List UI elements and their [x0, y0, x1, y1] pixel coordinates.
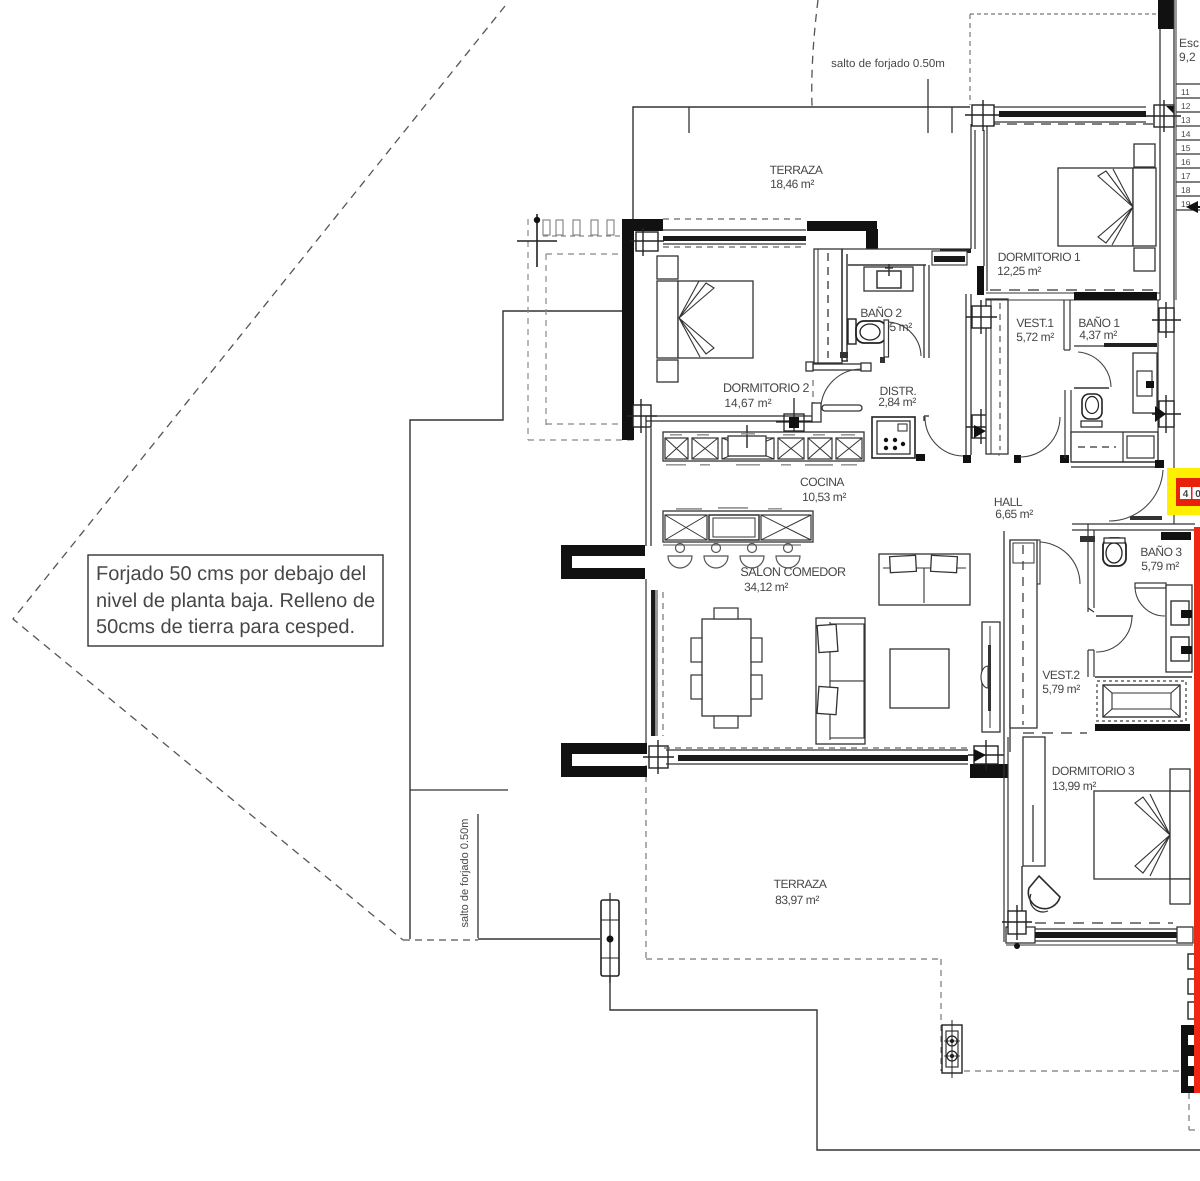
svg-text:Forjado 50 cms por debajo del: Forjado 50 cms por debajo del [96, 563, 366, 585]
svg-text:18: 18 [1181, 185, 1191, 195]
svg-text:50cms de tierra para cesped.: 50cms de tierra para cesped. [96, 616, 355, 638]
svg-text:34,12 m²: 34,12 m² [744, 580, 788, 594]
svg-text:4: 4 [1183, 489, 1189, 500]
svg-text:12: 12 [1181, 101, 1191, 111]
svg-text:VEST.1: VEST.1 [1016, 316, 1054, 330]
svg-text:TERRAZA: TERRAZA [770, 163, 823, 177]
svg-text:VEST.2: VEST.2 [1042, 668, 1080, 682]
svg-text:9,2: 9,2 [1179, 50, 1196, 64]
svg-text:5,79 m²: 5,79 m² [1042, 682, 1080, 696]
svg-text:15: 15 [1181, 143, 1191, 153]
svg-text:nivel de planta baja. Relleno: nivel de planta baja. Relleno de [96, 590, 375, 612]
svg-text:4,37 m²: 4,37 m² [1079, 328, 1117, 342]
svg-text:13,99 m²: 13,99 m² [1052, 779, 1096, 793]
svg-text:BAÑO 2: BAÑO 2 [860, 306, 902, 320]
svg-text:SALON COMEDOR: SALON COMEDOR [740, 565, 846, 579]
svg-text:14: 14 [1181, 129, 1191, 139]
svg-text:salto de forjado 0.50m: salto de forjado 0.50m [831, 58, 945, 70]
svg-text:DORMITORIO 2: DORMITORIO 2 [723, 381, 810, 395]
svg-text:10,53 m²: 10,53 m² [802, 490, 846, 504]
svg-text:17: 17 [1181, 171, 1191, 181]
svg-text:6,65 m²: 6,65 m² [995, 507, 1033, 521]
svg-text:TERRAZA: TERRAZA [774, 877, 827, 891]
svg-text:14,67 m²: 14,67 m² [724, 396, 771, 410]
svg-text:BAÑO 3: BAÑO 3 [1140, 545, 1182, 559]
svg-text:COCINA: COCINA [800, 475, 844, 489]
svg-text:18,46 m²: 18,46 m² [770, 177, 814, 191]
svg-text:16: 16 [1181, 157, 1191, 167]
svg-text:11: 11 [1181, 87, 1190, 97]
svg-text:13: 13 [1181, 115, 1191, 125]
svg-text:DORMITORIO 3: DORMITORIO 3 [1052, 764, 1135, 778]
svg-text:12,25 m²: 12,25 m² [997, 264, 1041, 278]
svg-text:2,84 m²: 2,84 m² [878, 395, 916, 409]
svg-text:Esc: Esc [1179, 36, 1199, 50]
svg-text:5,72 m²: 5,72 m² [1016, 330, 1054, 344]
svg-text:DORMITORIO 1: DORMITORIO 1 [998, 250, 1081, 264]
svg-text:salto de forjado 0.50m: salto de forjado 0.50m [459, 819, 471, 928]
svg-text:5,79 m²: 5,79 m² [1141, 559, 1179, 573]
svg-text:0: 0 [1195, 489, 1200, 500]
svg-text:83,97 m²: 83,97 m² [775, 893, 819, 907]
